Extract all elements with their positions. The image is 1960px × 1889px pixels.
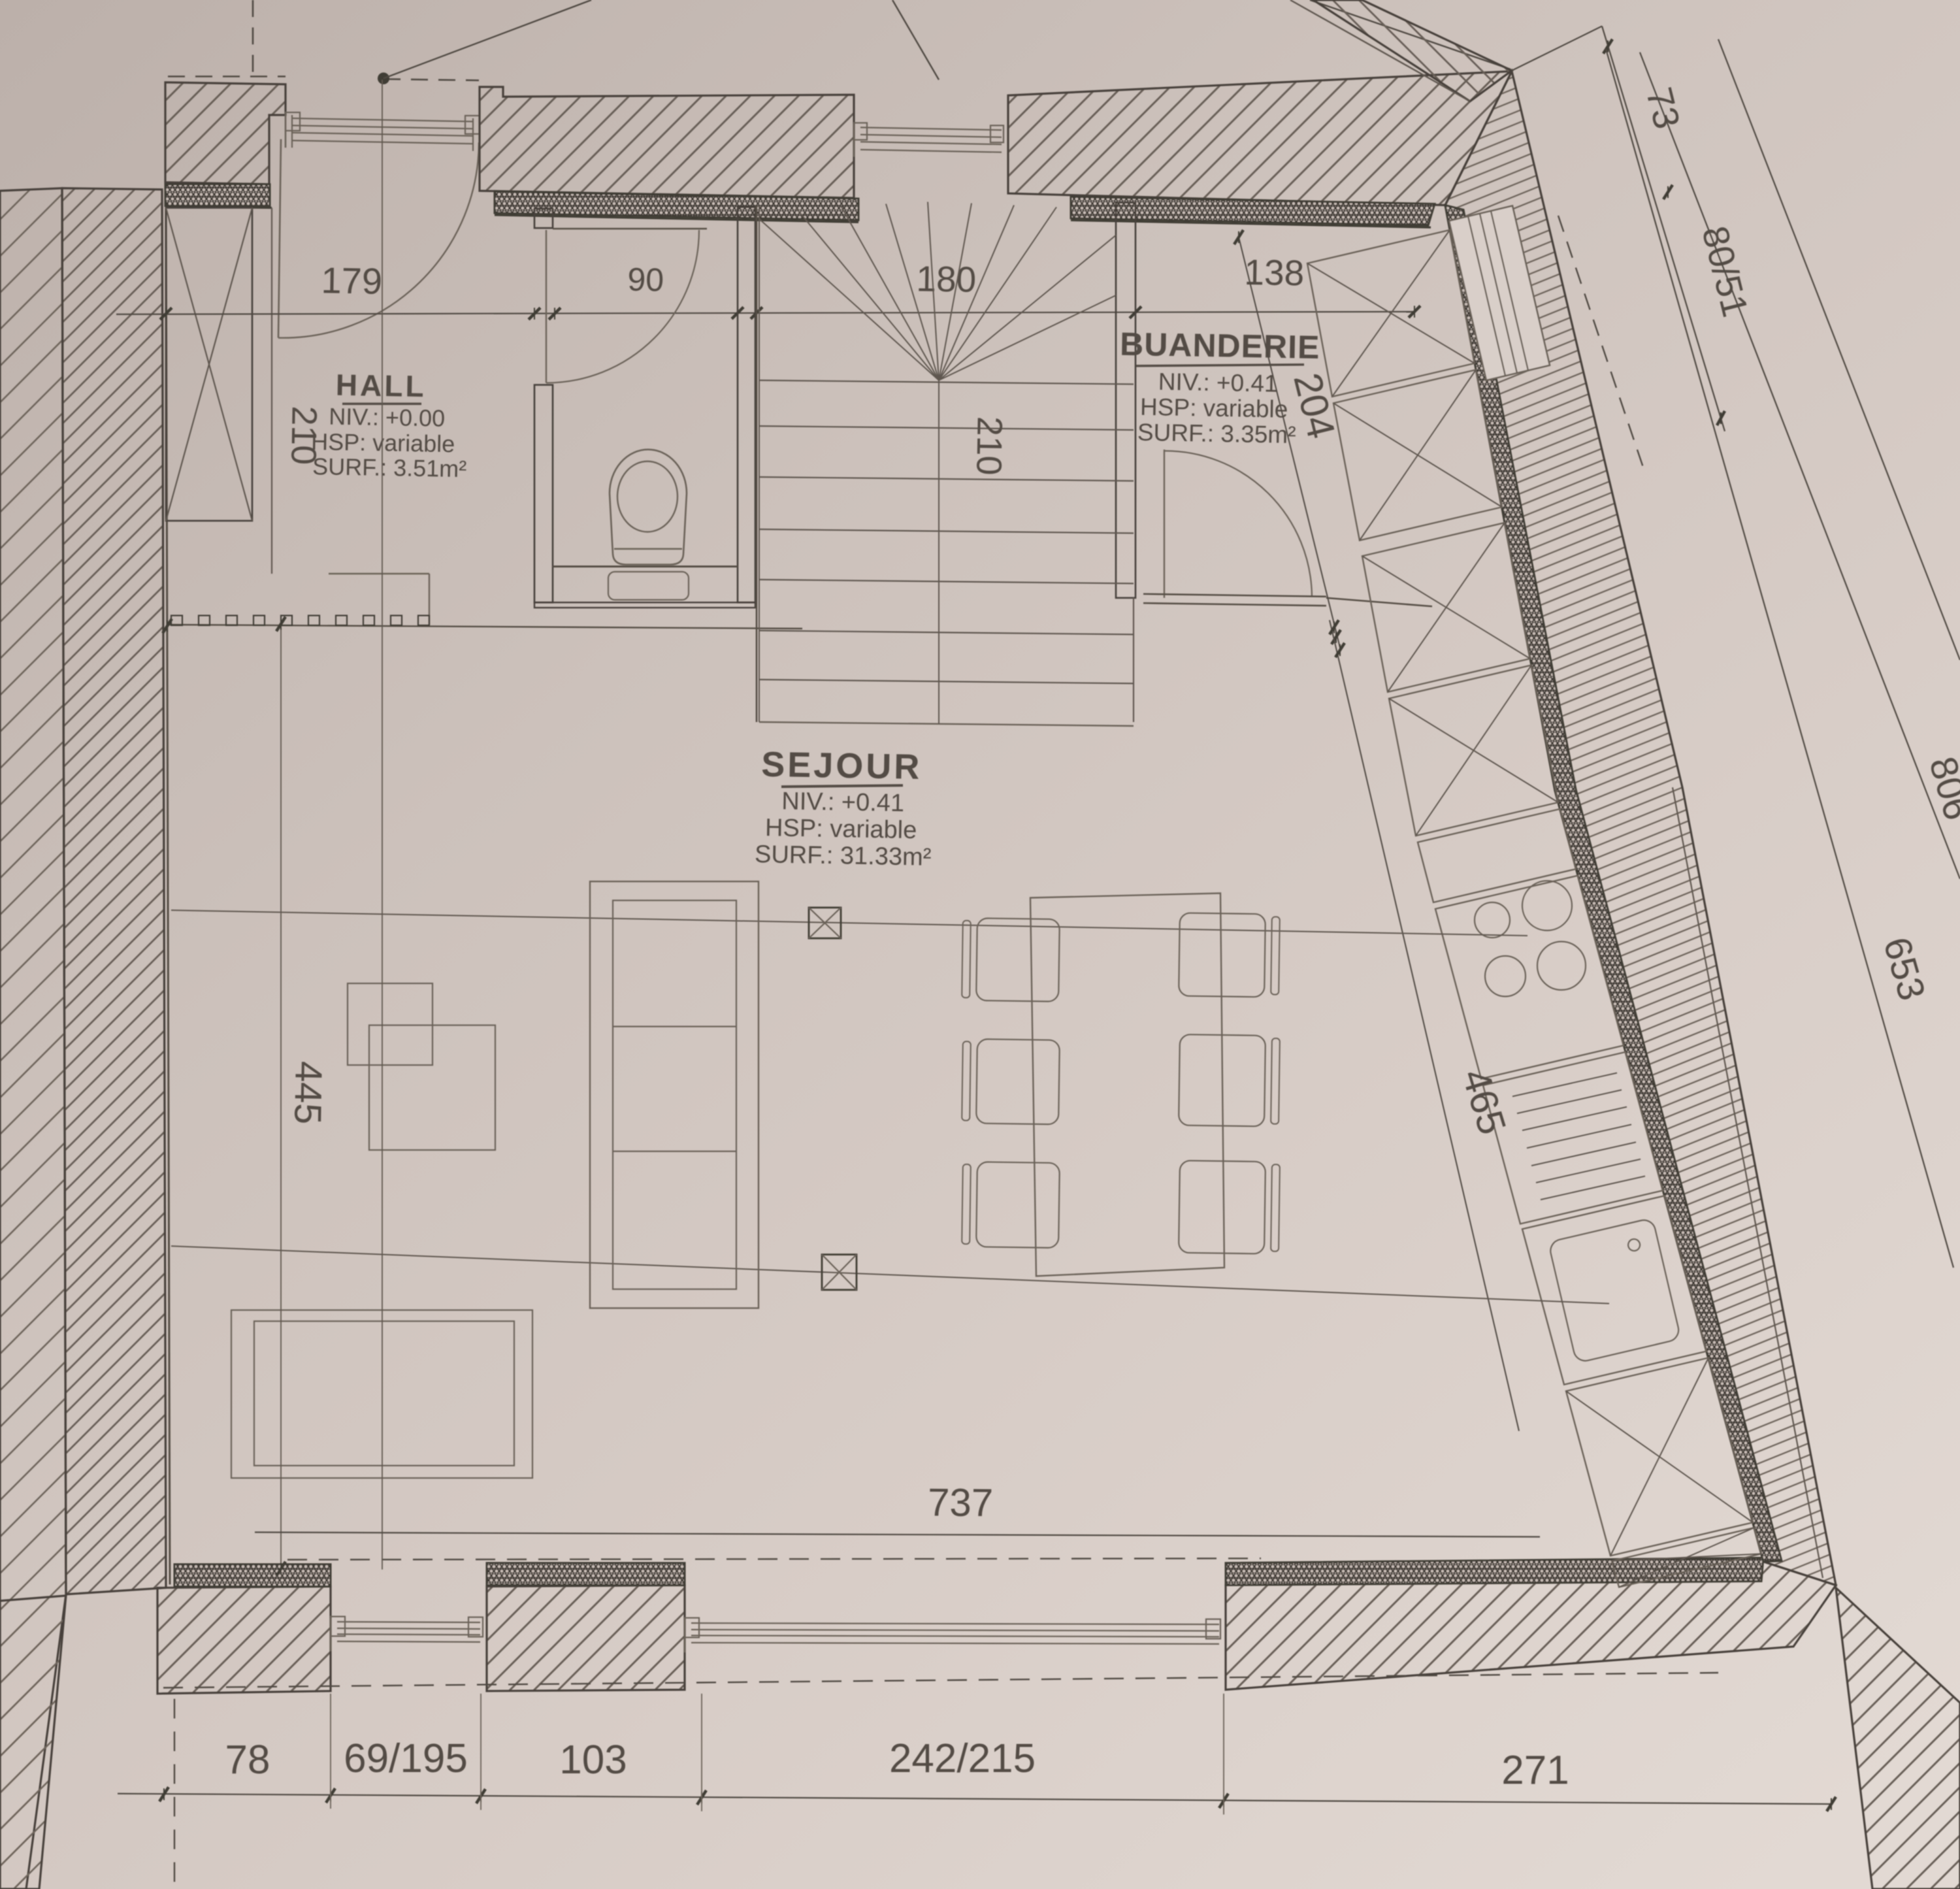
svg-text:SURF.: 31.33m²: SURF.: 31.33m²	[755, 841, 932, 872]
svg-text:180: 180	[916, 258, 977, 300]
svg-text:242/215: 242/215	[889, 1736, 1036, 1781]
svg-text:103: 103	[559, 1737, 627, 1782]
svg-text:78: 78	[225, 1737, 270, 1782]
svg-text:BUANDERIE: BUANDERIE	[1120, 325, 1320, 365]
svg-text:NIV.: +0.41: NIV.: +0.41	[1158, 368, 1277, 397]
svg-text:HSP: variable: HSP: variable	[1140, 393, 1288, 423]
svg-text:NIV.: +0.00: NIV.: +0.00	[329, 402, 446, 431]
svg-text:445: 445	[286, 1060, 330, 1125]
svg-text:SURF.: 3.35m²: SURF.: 3.35m²	[1137, 419, 1296, 448]
svg-text:210: 210	[969, 416, 1009, 476]
svg-text:138: 138	[1244, 252, 1305, 293]
svg-text:69/195: 69/195	[344, 1736, 468, 1781]
svg-text:271: 271	[1501, 1748, 1569, 1793]
svg-text:90: 90	[627, 261, 664, 299]
svg-text:210: 210	[284, 406, 324, 465]
svg-text:NIV.: +0.41: NIV.: +0.41	[781, 787, 904, 817]
svg-text:HSP: variable: HSP: variable	[765, 814, 917, 844]
svg-text:SEJOUR: SEJOUR	[761, 745, 923, 787]
svg-text:737: 737	[928, 1481, 994, 1525]
svg-text:SURF.: 3.51m²: SURF.: 3.51m²	[312, 453, 467, 482]
svg-text:179: 179	[321, 259, 383, 302]
svg-text:HALL: HALL	[336, 368, 427, 403]
